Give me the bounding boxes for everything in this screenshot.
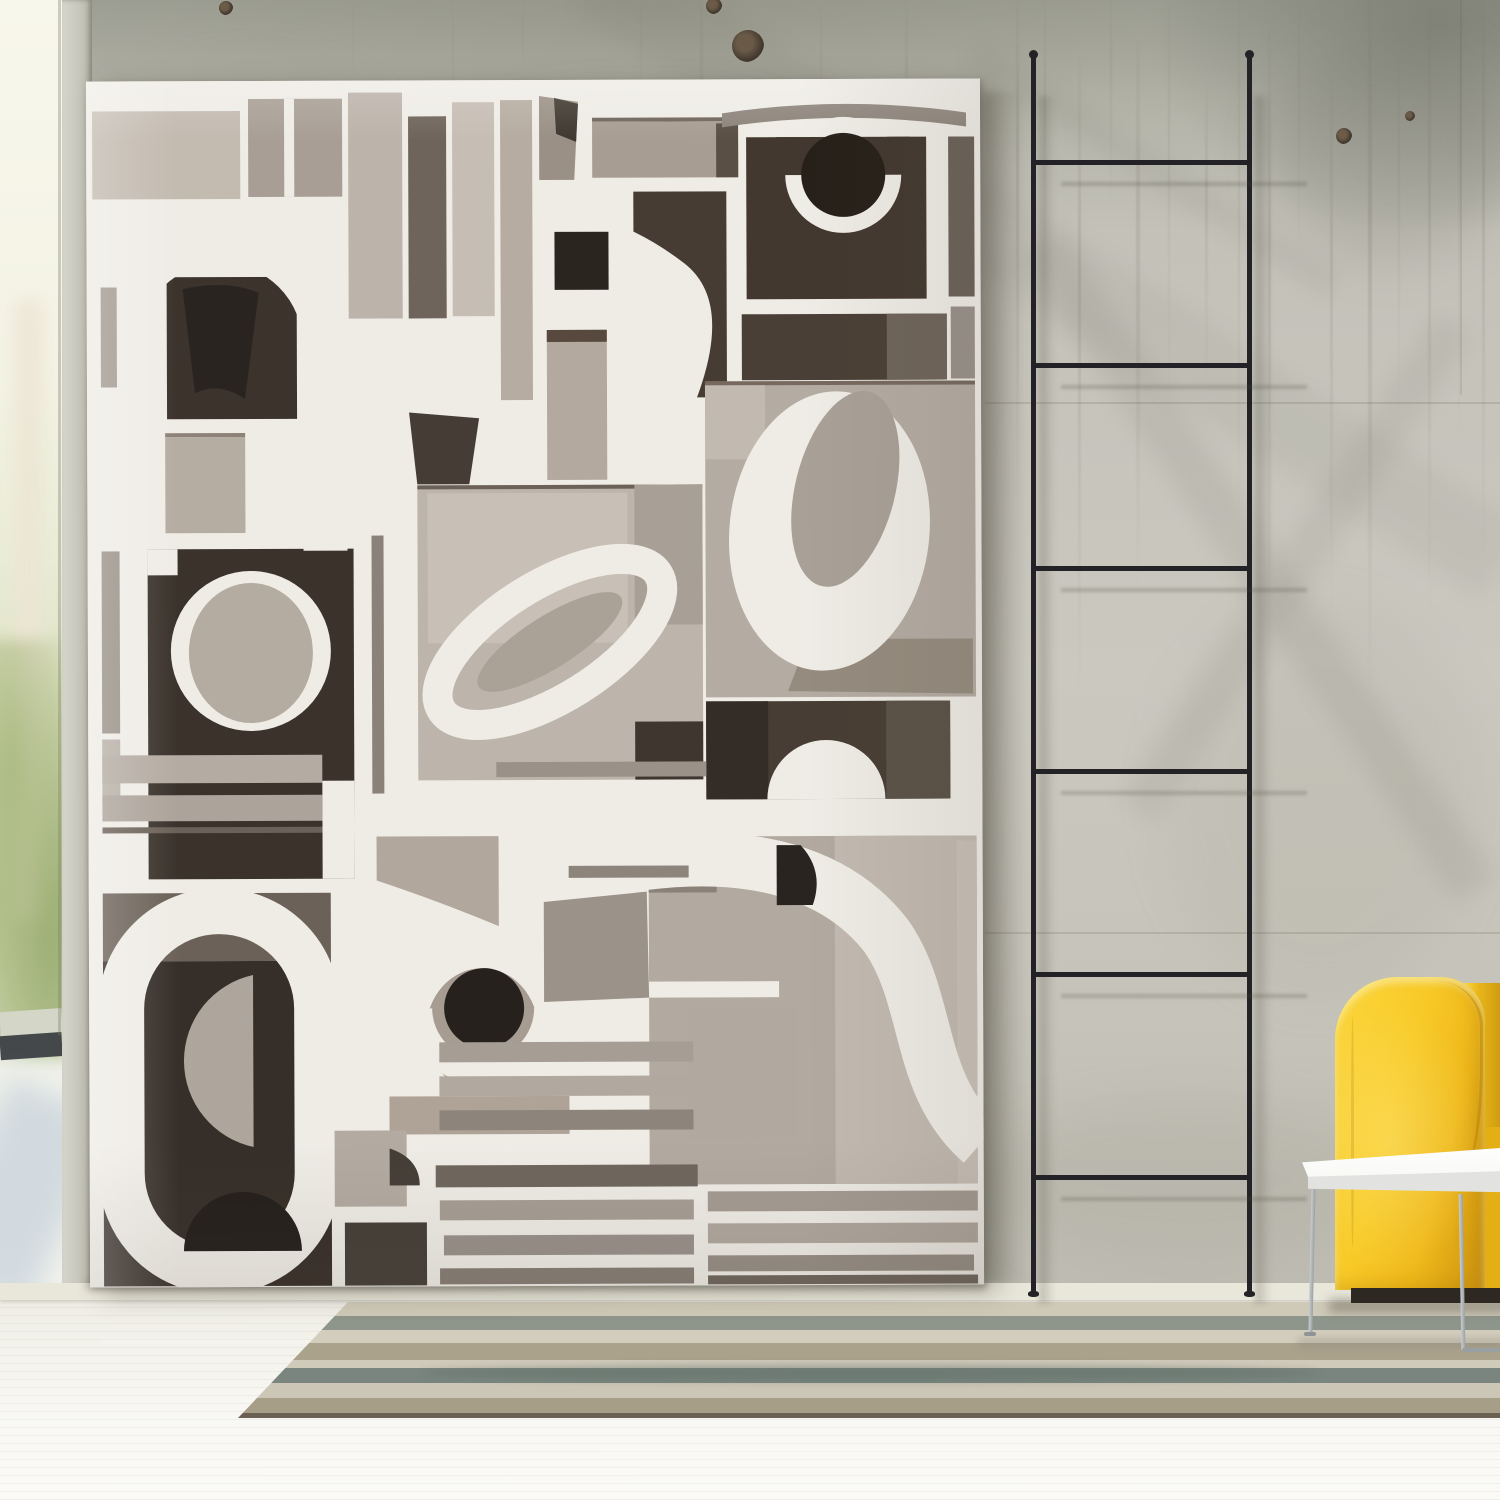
ladder-rung-shadow-1 xyxy=(1061,385,1307,389)
rail-left-foot xyxy=(1028,1291,1039,1297)
ladder-rung-5 xyxy=(1031,1175,1252,1180)
table-floor-shadow xyxy=(1298,1338,1500,1348)
ladder-rung-shadow-5 xyxy=(1061,1197,1307,1201)
rail-left-finial xyxy=(1029,50,1038,59)
ladder-rung-shadow-4 xyxy=(1061,994,1307,998)
rail-right-foot xyxy=(1244,1291,1255,1297)
rail-right-shadow xyxy=(1255,96,1271,1304)
ladder-rung-2 xyxy=(1031,566,1252,571)
rail-right xyxy=(1247,56,1252,1294)
rail-left-shadow xyxy=(1039,96,1055,1304)
sofa-base xyxy=(1351,1288,1500,1303)
ladder xyxy=(0,0,1500,1500)
ladder-rung-shadow-2 xyxy=(1061,588,1307,592)
ladder-rung-3 xyxy=(1031,769,1252,774)
rail-left xyxy=(1031,56,1036,1294)
ladder-rung-shadow-3 xyxy=(1061,791,1307,795)
table-foot-left xyxy=(1304,1332,1316,1336)
interior-photo xyxy=(0,0,1500,1500)
yellow-sofa xyxy=(1335,977,1500,1307)
table-foot-right xyxy=(1462,1348,1500,1352)
ladder-rung-0 xyxy=(1031,160,1252,165)
rail-right-finial xyxy=(1245,50,1254,59)
ladder-rung-4 xyxy=(1031,972,1252,977)
ladder-rung-shadow-0 xyxy=(1061,182,1307,186)
ladder-rung-1 xyxy=(1031,363,1252,368)
sofa-seam-left xyxy=(1351,1017,1354,1247)
